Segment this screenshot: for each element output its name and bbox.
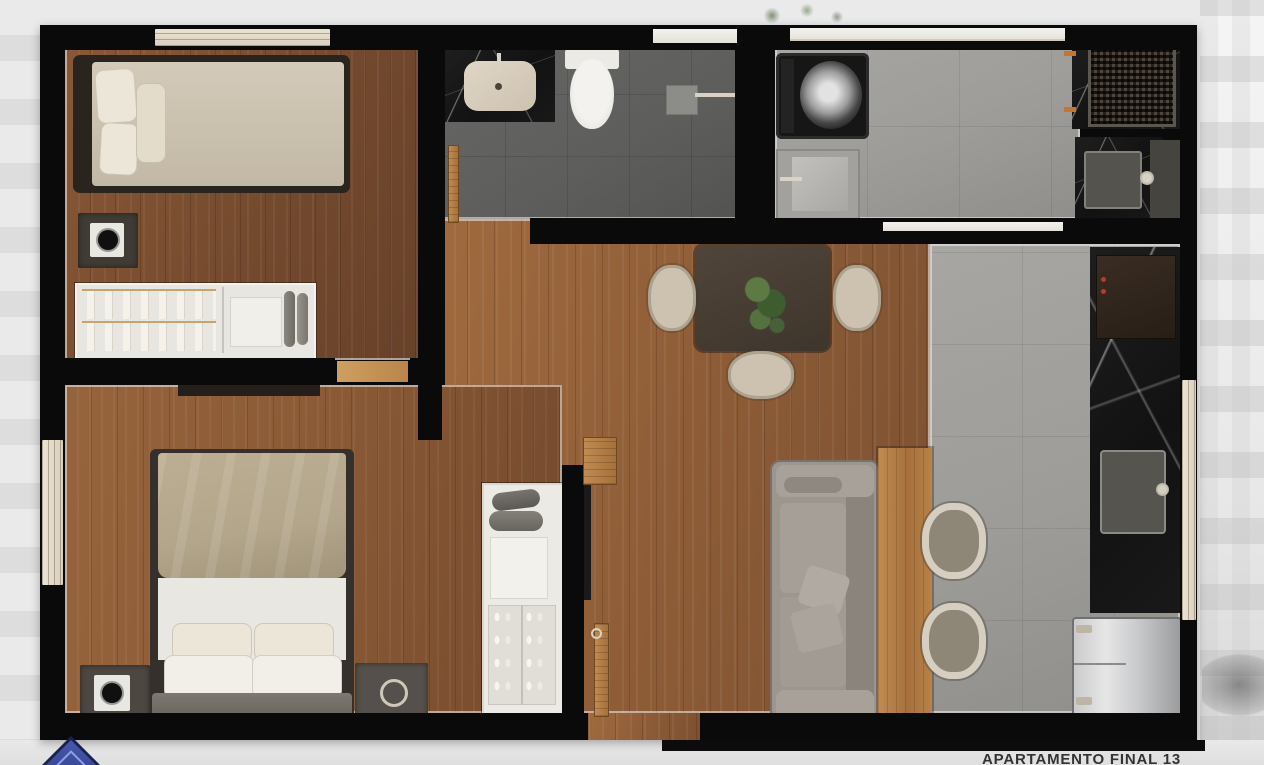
wall-stub <box>410 358 445 385</box>
plant <box>728 263 798 341</box>
drawer-pull <box>1064 107 1076 112</box>
cooktop-knob <box>1101 277 1106 282</box>
background-foliage <box>752 0 852 26</box>
drain <box>495 83 502 90</box>
faucet <box>1156 483 1169 496</box>
fridge-handle <box>1076 625 1092 633</box>
floor-plan <box>40 25 1197 740</box>
bedroom1-door-threshold <box>337 361 408 382</box>
bathroom-door <box>448 145 459 223</box>
entry-threshold <box>588 713 700 740</box>
dining-chair <box>728 351 794 399</box>
background-building-left <box>0 0 42 765</box>
tv-panel <box>584 475 591 600</box>
master-bedroom-door <box>583 437 617 485</box>
pillow <box>136 83 166 163</box>
dining-chair <box>833 265 881 331</box>
hanging-clothes <box>82 289 216 319</box>
door-handle <box>591 628 602 639</box>
washer-control-panel <box>781 59 794 133</box>
bar-stool <box>922 503 986 579</box>
fridge-handle <box>1076 697 1092 705</box>
bottom-black-bar <box>662 740 1205 751</box>
shoe-rack-divider <box>521 605 523 705</box>
pillow <box>99 122 140 176</box>
grill <box>1088 45 1176 127</box>
wall-bottom-left <box>40 713 588 740</box>
bar-stool <box>922 603 986 679</box>
faucet <box>497 53 501 73</box>
washer-lid <box>800 61 862 129</box>
wall-bathroom-service <box>735 25 775 219</box>
cooktop-knob <box>1101 289 1106 294</box>
wall-bedrooms-divider <box>40 358 335 385</box>
sliding-glass-door <box>883 222 1063 231</box>
faucet <box>780 177 802 181</box>
pillow <box>94 68 138 125</box>
background-building-right <box>1200 0 1264 742</box>
bar-counter <box>878 448 932 738</box>
rolled-towel <box>297 293 308 345</box>
wardrobe-divider <box>222 287 224 353</box>
cooktop <box>1096 255 1176 339</box>
window-bedroom1 <box>155 29 330 46</box>
sofa-headrest <box>784 477 842 493</box>
dining-chair <box>648 265 696 331</box>
wall-master-living <box>562 465 584 713</box>
page: APARTAMENTO FINAL 13 <box>0 0 1264 765</box>
wall-below-bathroom <box>530 218 1180 244</box>
rolled-towel <box>284 291 295 347</box>
service-cabinet <box>1150 140 1180 218</box>
rolled-towel <box>489 511 543 531</box>
fridge-door-seam <box>1074 663 1126 665</box>
decor-object <box>380 679 408 707</box>
table-lamp <box>102 683 122 703</box>
caption: APARTAMENTO FINAL 13 <box>982 751 1181 765</box>
toilet <box>570 59 614 129</box>
wall-bottom-right <box>700 713 1197 740</box>
drawer-pull <box>1064 51 1076 56</box>
wall-hallway-corner <box>418 385 442 440</box>
window-kitchen <box>1182 380 1196 620</box>
faucet <box>1140 171 1154 185</box>
sofa-back <box>846 471 874 713</box>
hanging-clothes <box>82 321 216 351</box>
background-car <box>1202 640 1264 740</box>
wall-bedroom1-bathroom <box>418 25 445 358</box>
window-master-bedroom <box>42 440 63 585</box>
folded-linens <box>490 537 548 599</box>
window-service <box>790 28 1065 41</box>
kitchen-sink <box>1084 151 1142 209</box>
laundry-basin <box>792 157 848 211</box>
double-bed-blanket <box>158 453 346 578</box>
shower-fixture <box>666 85 698 115</box>
folded-linens <box>230 297 282 347</box>
table-lamp <box>98 230 118 250</box>
window-bathroom <box>653 29 737 43</box>
